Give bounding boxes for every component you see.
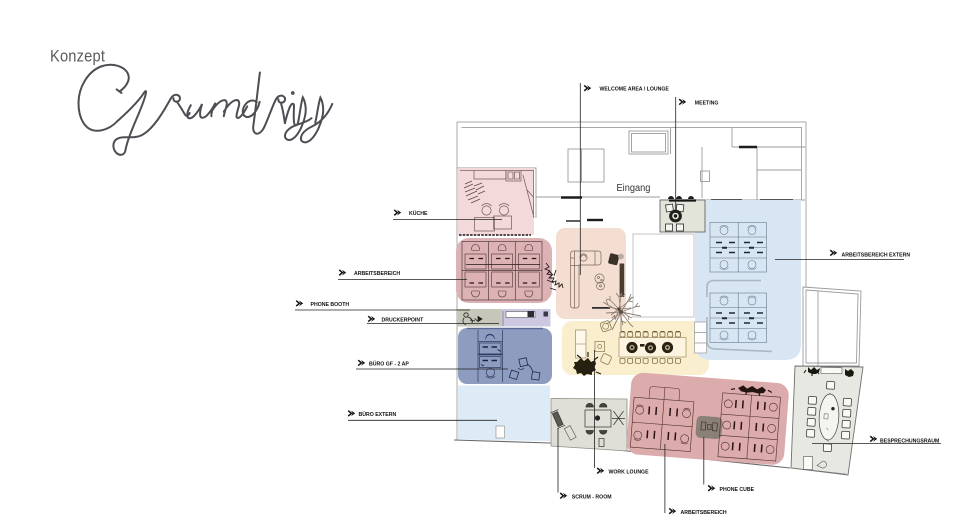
svg-text:WORK LOUNGE: WORK LOUNGE (609, 470, 650, 476)
svg-text:PHONE BOOTH: PHONE BOOTH (311, 302, 350, 308)
svg-text:ARBEITSBEREICH EXTERN: ARBEITSBEREICH EXTERN (842, 253, 911, 259)
svg-text:ARBEITSBEREICH: ARBEITSBEREICH (681, 510, 727, 516)
svg-text:MEETING: MEETING (695, 100, 719, 106)
svg-text:DRUCKERPOINT: DRUCKERPOINT (382, 318, 425, 324)
svg-text:BESPRECHUNGSRAUM: BESPRECHUNGSRAUM (880, 438, 939, 444)
svg-text:KÜCHE: KÜCHE (409, 210, 428, 217)
svg-text:Eingang: Eingang (617, 182, 651, 194)
svg-text:ARBEITSBEREICH: ARBEITSBEREICH (354, 271, 400, 277)
svg-text:BÜRO GF - 2 AP: BÜRO GF - 2 AP (369, 360, 409, 367)
svg-text:BÜRO EXTERN: BÜRO EXTERN (359, 411, 397, 418)
svg-text:Konzept: Konzept (50, 48, 106, 66)
svg-text:WELCOME AREA / LOUNGE: WELCOME AREA / LOUNGE (600, 86, 670, 92)
svg-text:SCRUM - ROOM: SCRUM - ROOM (572, 494, 612, 500)
svg-text:PHONE CUBE: PHONE CUBE (720, 487, 755, 493)
